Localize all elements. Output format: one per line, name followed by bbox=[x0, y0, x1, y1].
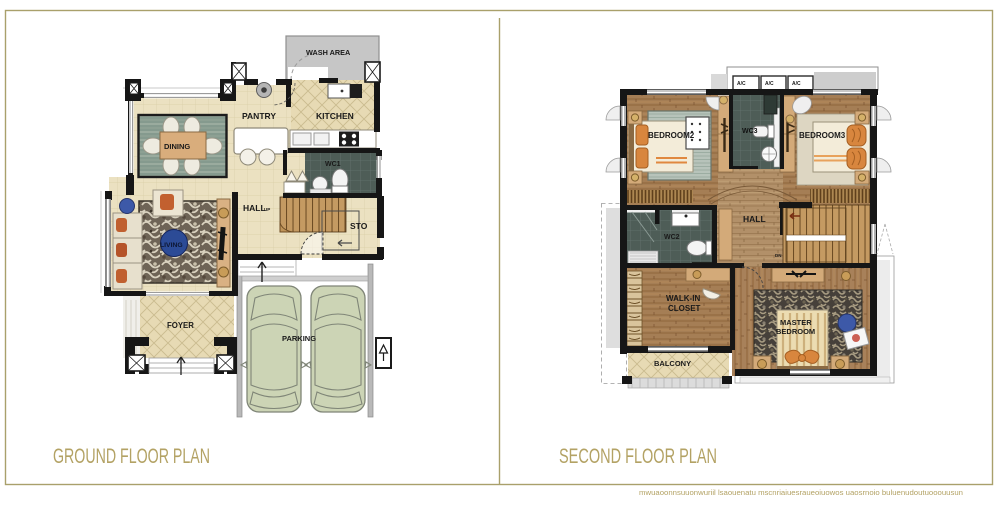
svg-text:CLOSET: CLOSET bbox=[668, 304, 701, 313]
svg-text:BALCONY: BALCONY bbox=[654, 359, 691, 368]
svg-text:PANTRY: PANTRY bbox=[242, 111, 276, 121]
svg-text:DINING: DINING bbox=[164, 142, 190, 151]
svg-text:WC2: WC2 bbox=[664, 234, 680, 241]
svg-text:PARKING: PARKING bbox=[282, 334, 316, 343]
svg-text:GROUND FLOOR PLAN: GROUND FLOOR PLAN bbox=[53, 444, 210, 468]
svg-text:HALL: HALL bbox=[743, 214, 766, 224]
svg-text:BEDROOM3: BEDROOM3 bbox=[799, 131, 846, 140]
svg-text:KITCHEN: KITCHEN bbox=[316, 111, 354, 121]
svg-text:SECOND FLOOR PLAN: SECOND FLOOR PLAN bbox=[559, 444, 717, 468]
svg-text:WC1: WC1 bbox=[325, 161, 341, 168]
svg-text:UP: UP bbox=[264, 207, 270, 212]
svg-text:mwuaoonnsuuonwuriil lsaouenatu: mwuaoonnsuuonwuriil lsaouenatu mscnriaiu… bbox=[639, 488, 963, 497]
svg-text:HALL: HALL bbox=[243, 203, 266, 213]
svg-text:DN: DN bbox=[775, 253, 782, 258]
svg-text:WC3: WC3 bbox=[742, 128, 758, 135]
svg-text:A/C: A/C bbox=[792, 81, 801, 87]
svg-text:WALK-IN: WALK-IN bbox=[666, 294, 700, 303]
svg-text:BEDROOM2: BEDROOM2 bbox=[648, 131, 695, 140]
svg-text:STO: STO bbox=[350, 221, 368, 231]
svg-text:LIVING: LIVING bbox=[160, 242, 183, 249]
svg-text:WASH AREA: WASH AREA bbox=[306, 48, 351, 57]
svg-text:A/C: A/C bbox=[765, 81, 774, 87]
svg-text:A/C: A/C bbox=[737, 81, 746, 87]
svg-text:FOYER: FOYER bbox=[167, 321, 194, 330]
svg-text:BEDROOM: BEDROOM bbox=[776, 327, 815, 336]
svg-text:MASTER: MASTER bbox=[780, 318, 812, 327]
